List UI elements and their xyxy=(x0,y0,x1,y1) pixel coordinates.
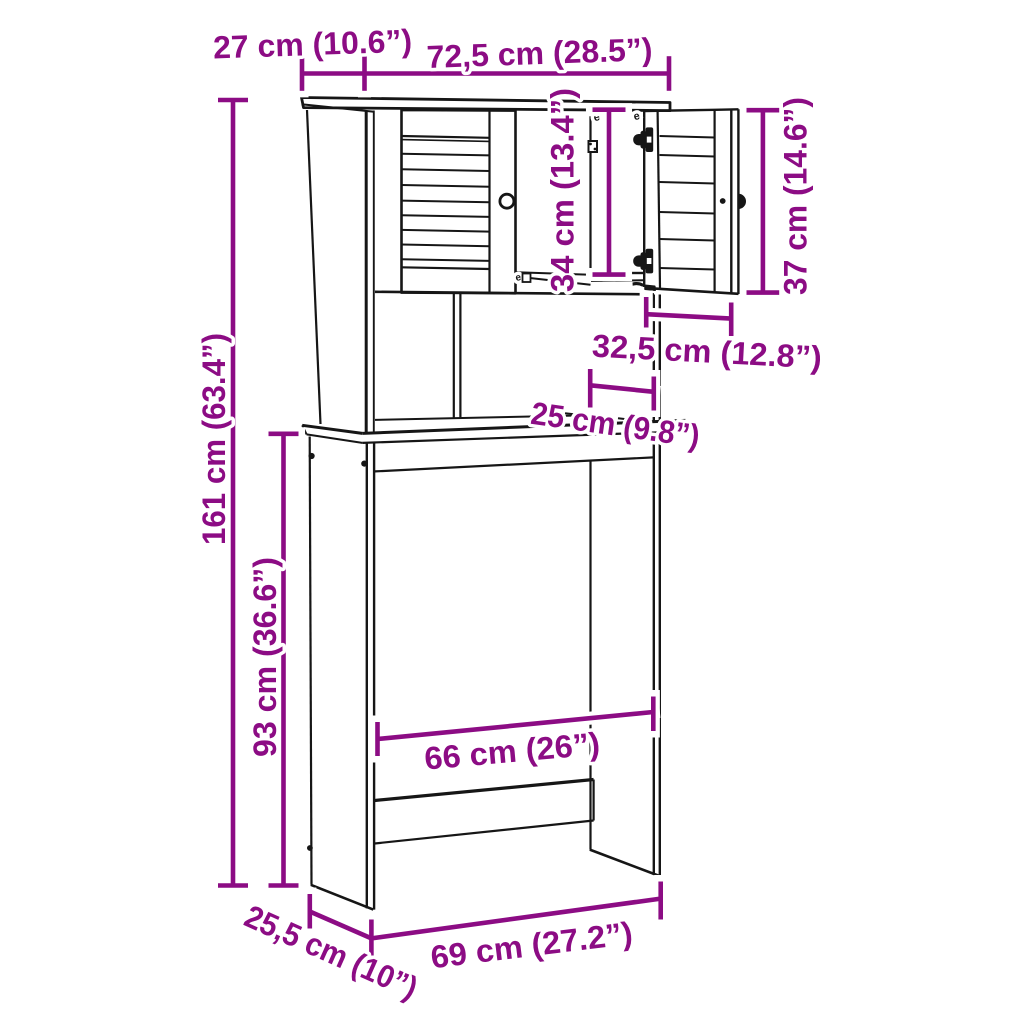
svg-text:93 cm (36.6”): 93 cm (36.6”) xyxy=(247,557,283,757)
svg-text:27 cm (10.6”): 27 cm (10.6”) xyxy=(212,23,412,66)
svg-text:161 cm (63.4”): 161 cm (63.4”) xyxy=(196,333,232,545)
svg-text:37 cm (14.6”): 37 cm (14.6”) xyxy=(778,97,814,295)
svg-text:34 cm (13.4”): 34 cm (13.4”) xyxy=(545,88,581,292)
